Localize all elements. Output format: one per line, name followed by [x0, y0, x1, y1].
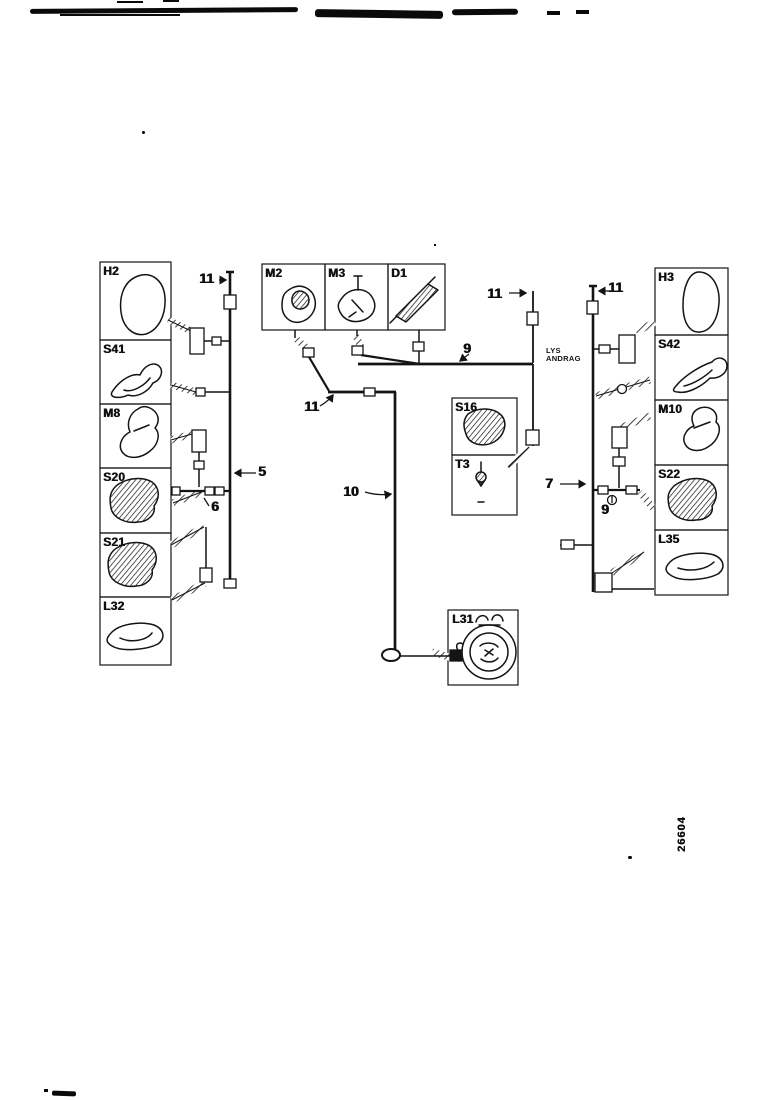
- wiring-diagram-page: H2 S41 M8 S20 S21 L32 M2 M3 D1 S16 T3 L3…: [0, 0, 778, 1100]
- resistor-card-sketch-d1: [390, 277, 438, 323]
- switch-sketch-s21: [108, 543, 156, 587]
- label-l35: L35: [658, 533, 679, 545]
- harness-loom-segments: [168, 320, 655, 658]
- callout-6-left-junction: 6: [211, 499, 219, 513]
- mirror-glass-sketch-h3: [683, 272, 719, 332]
- label-s16: S16: [455, 401, 477, 413]
- sensor-sketch-t3: [476, 462, 486, 502]
- label-s22: S22: [658, 468, 680, 480]
- callout-9-right-junction: 9: [601, 502, 609, 516]
- motor-sketch-m3: [338, 276, 375, 322]
- callout-11-center-left: 11: [304, 399, 319, 413]
- mirror-glass-sketch-h2: [121, 275, 166, 335]
- label-l31: L31: [452, 613, 473, 625]
- label-h2: H2: [103, 265, 119, 277]
- harness-note: LYS ANDRAG: [546, 347, 581, 363]
- label-h3: H3: [658, 271, 674, 283]
- label-d1: D1: [391, 267, 407, 279]
- switch-sketch-s20: [110, 479, 158, 523]
- switch-sketch-s22: [668, 479, 716, 521]
- callout-11-center-right: 11: [487, 286, 502, 300]
- handle-sketch-s42: [674, 358, 727, 392]
- label-m2: M2: [265, 267, 282, 279]
- callout-11-left-bus: 11: [199, 271, 214, 285]
- callout-10-harness-drop: 10: [343, 484, 359, 498]
- label-t3: T3: [455, 458, 469, 470]
- handle-sketch-s41: [111, 364, 161, 397]
- motor-sketch-m2: [282, 286, 315, 322]
- motor-sketch-m10: [684, 407, 719, 450]
- label-l32: L32: [103, 600, 124, 612]
- lamp-sketch-l35: [666, 553, 723, 579]
- lamp-sketch-l32: [107, 623, 163, 649]
- part-number: 26604: [676, 816, 688, 852]
- harness-note-line2: ANDRAG: [546, 355, 581, 363]
- callout-11-right-bus: 11: [608, 280, 623, 294]
- label-s42: S42: [658, 338, 680, 350]
- diagram-art: [0, 0, 778, 1100]
- label-s41: S41: [103, 343, 125, 355]
- component-boxes: [100, 262, 728, 685]
- callout-9-bus-center: 9: [463, 341, 471, 355]
- label-m8: M8: [103, 407, 120, 419]
- callout-5-left-bus: 5: [258, 464, 266, 478]
- label-s21: S21: [103, 536, 125, 548]
- switch-sketch-s16: [464, 409, 505, 445]
- label-s20: S20: [103, 471, 125, 483]
- motor-sketch-m8: [120, 407, 158, 458]
- label-m3: M3: [328, 267, 345, 279]
- callout-7-right-bus: 7: [545, 476, 553, 490]
- label-m10: M10: [658, 403, 682, 415]
